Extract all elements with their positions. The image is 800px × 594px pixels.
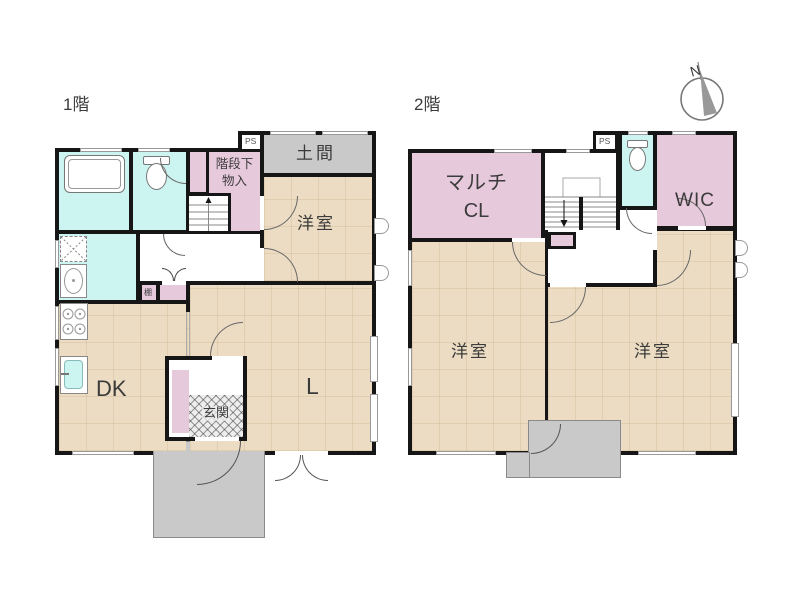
f2-right-long-window bbox=[731, 343, 739, 417]
f1-living-label: L bbox=[306, 373, 319, 399]
f2-balcony-ext bbox=[506, 452, 530, 478]
f1-shelf-label: 棚 bbox=[144, 288, 152, 297]
kitchen-sink-icon bbox=[60, 356, 88, 394]
f2-left-wall-window2 bbox=[408, 348, 412, 386]
floor1-title: 1階 bbox=[63, 95, 89, 115]
f2-multicl-label-line2: CL bbox=[412, 200, 541, 223]
stove-icon bbox=[60, 303, 88, 340]
f1-living-door-gap bbox=[212, 356, 243, 360]
f1-doma-window2 bbox=[322, 131, 368, 135]
f2-left-room-bottom-window bbox=[436, 451, 496, 455]
f2-multicl-window bbox=[494, 149, 532, 153]
f2-right-room-bottom-window bbox=[638, 451, 696, 455]
f2-wic-window bbox=[672, 131, 696, 135]
f2-wic-door-gap bbox=[678, 226, 706, 230]
f1-terrace-door-right bbox=[302, 455, 328, 481]
f2-stair-cabinet bbox=[548, 232, 576, 249]
f2-left-wall-window1 bbox=[408, 250, 412, 286]
f2-right-small-window2 bbox=[735, 262, 748, 278]
f1-doma-window1 bbox=[270, 131, 316, 135]
f1-dk-bottom-window bbox=[72, 451, 134, 455]
f2-stairs-icon bbox=[545, 153, 616, 230]
floor2-title: 2階 bbox=[414, 95, 440, 115]
f2-room-multi-closet bbox=[412, 153, 541, 238]
f1-western-small-window2 bbox=[374, 265, 389, 281]
f1-closet-strip bbox=[190, 152, 206, 192]
f1-western-label: 洋室 bbox=[297, 214, 335, 234]
f1-hallway bbox=[140, 234, 260, 281]
f2-wic-label: WIC bbox=[657, 190, 733, 212]
f2-toilet-icon bbox=[626, 139, 650, 173]
f1-bath-window bbox=[80, 148, 122, 152]
f1-cabinet-box bbox=[160, 285, 186, 300]
f1-terrace-door-left bbox=[275, 455, 301, 481]
f1-stairs-icon bbox=[189, 196, 228, 231]
f1-dk-window1 bbox=[55, 306, 59, 340]
f2-toilet-window bbox=[628, 131, 648, 135]
f1-doma-label: 土間 bbox=[296, 144, 336, 164]
f2-right-small-window1 bbox=[735, 240, 748, 256]
f1-dk-label: DK bbox=[96, 376, 127, 401]
f1-western-small-window1 bbox=[374, 218, 389, 234]
f1-toilet-window bbox=[138, 148, 170, 152]
f1-washroom-window bbox=[55, 240, 59, 268]
f1-living-window2 bbox=[370, 394, 378, 442]
f1-dk-window2 bbox=[55, 348, 59, 386]
f2-western-left-label: 洋室 bbox=[451, 342, 489, 362]
f1-entrance-label: 玄関 bbox=[202, 406, 230, 421]
compass-north-label: N bbox=[688, 62, 702, 80]
f1-storage-label-line1: 階段下 bbox=[209, 157, 260, 171]
washing-machine-icon bbox=[60, 236, 87, 262]
f2-western-right-label: 洋室 bbox=[634, 342, 672, 362]
floor-plan-canvas: 1階 2階 N bbox=[0, 0, 800, 594]
f2-ps-label: PS bbox=[599, 137, 610, 147]
bathtub-icon bbox=[64, 155, 125, 193]
f1-dk-door-gap bbox=[162, 281, 186, 285]
f1-dk-living-opening bbox=[186, 312, 190, 356]
f1-shoe-cabinet bbox=[172, 370, 189, 433]
f2-multicl-label-line1: マルチ bbox=[412, 172, 541, 195]
f1-storage-label-line2: 物入 bbox=[209, 174, 260, 188]
f2-stair-window bbox=[566, 149, 590, 153]
f1-ps-label: PS bbox=[245, 137, 256, 147]
f1-living-window1 bbox=[370, 336, 378, 382]
compass-icon: N bbox=[670, 56, 734, 128]
washbasin-icon bbox=[60, 264, 87, 298]
